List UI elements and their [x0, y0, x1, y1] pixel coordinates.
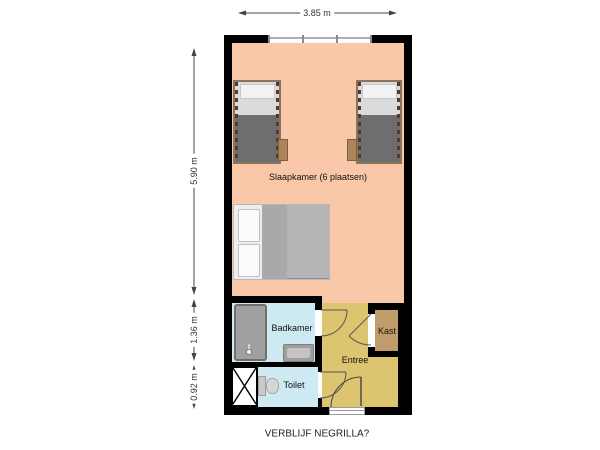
bathroom-label: Badkamer [271, 323, 312, 333]
bed-ladder-marks [397, 82, 400, 162]
bed-sheet-band [262, 205, 287, 279]
hall-label: Entree [342, 355, 369, 365]
nightstand [347, 139, 357, 161]
floor-plan: Slaapkamer (6 plaatsen) Badkamer Toilet … [0, 0, 600, 450]
bathroom-top-wall [224, 296, 322, 303]
toilet-door-opening [318, 372, 322, 398]
bed-pillow [240, 84, 275, 99]
bathtub-inner [287, 348, 310, 358]
bed-pillow [238, 244, 260, 277]
window-glass-line [268, 37, 372, 39]
bed-pillow [238, 209, 260, 242]
window-mullion [302, 35, 304, 43]
window-mullion [336, 35, 338, 43]
bed-pillow [362, 84, 397, 99]
closet-label: Kast [378, 326, 396, 336]
dimension-width: 3.85 m [300, 8, 334, 18]
bed-blanket [235, 115, 279, 162]
front-door-threshold [329, 407, 365, 415]
plan-caption: VERBLIJF NEGRILLA? [265, 429, 369, 440]
bathroom-door-opening [315, 310, 322, 336]
bunk-bed-left [233, 80, 281, 164]
window-mullion [268, 35, 270, 43]
nightstand [278, 139, 288, 161]
dimension-height-bathroom: 1.36 m [189, 313, 199, 347]
bunk-bed-right [356, 80, 402, 164]
threshold-line [330, 410, 364, 411]
toilet-label: Toilet [283, 380, 304, 390]
toilet-cistern [258, 376, 266, 396]
bathtub [283, 344, 314, 362]
bed-blanket [287, 205, 329, 279]
bedroom-label: Slaapkamer (6 plaatsen) [269, 172, 367, 182]
window-mullion [370, 35, 372, 43]
double-bed [233, 204, 330, 280]
dimension-height-toilet: 0.92 m [189, 370, 199, 404]
bed-ladder-marks [235, 82, 238, 162]
bed-blanket [358, 115, 400, 162]
dimension-height-main: 5.90 m [189, 154, 199, 188]
shower-cabin [234, 304, 267, 361]
closet-door-opening [368, 314, 375, 347]
bed-ladder-marks [358, 82, 361, 162]
toilet-bowl [266, 378, 279, 394]
shaft-box [231, 366, 258, 407]
